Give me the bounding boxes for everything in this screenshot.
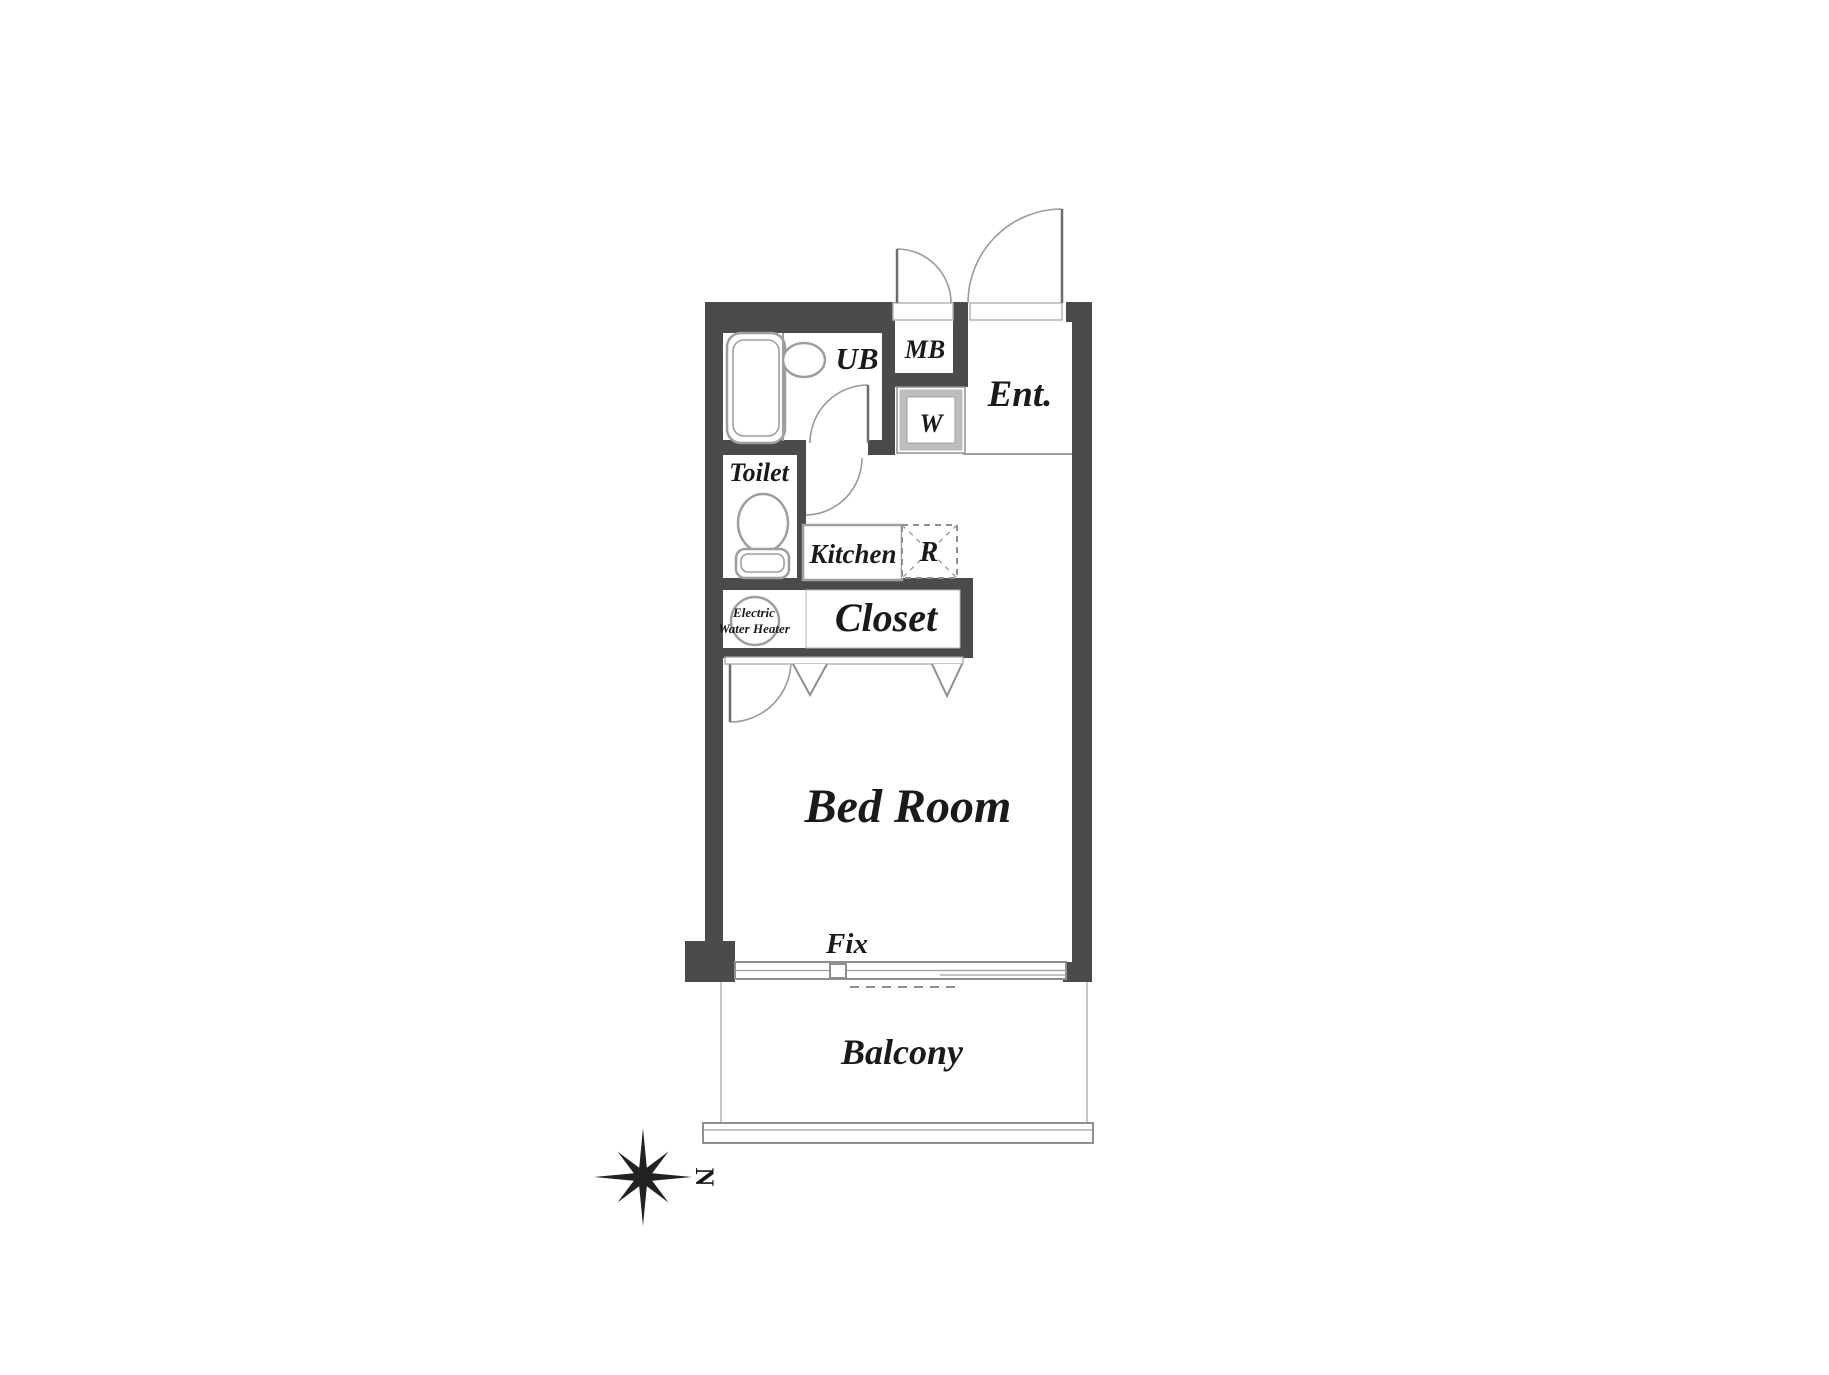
closet-door-mark-left [793, 664, 827, 695]
room-label-bedroom: Bed Room [804, 780, 1012, 833]
bedroom-door-swing [730, 661, 791, 722]
washbasin-icon [783, 343, 825, 377]
closet-door-mark-right [932, 664, 962, 696]
water-heater-label-line2: Water Heater [718, 621, 791, 636]
room-label-mb: MB [904, 335, 945, 364]
door-openings [893, 303, 1062, 320]
room-label-closet: Closet [835, 595, 939, 640]
wall-ub-bottom-stub [868, 440, 895, 455]
room-label-balcony: Balcony [840, 1032, 964, 1072]
wall-top-left [705, 302, 891, 333]
ub-door-swing [810, 385, 868, 443]
mb-door-swing [897, 249, 951, 303]
fix-window [735, 962, 1066, 987]
wall-right [1072, 318, 1092, 982]
bathtub-icon [727, 333, 785, 443]
wall-pillar-bottom-left [685, 941, 735, 982]
closet-track-line [725, 657, 963, 664]
fix-window-label: Fix [825, 928, 868, 960]
balcony-rail [703, 1123, 1093, 1143]
water-heater-label-line1: Electric [732, 605, 775, 620]
wall-ub-mb-divider [882, 302, 895, 453]
mb-door-opening [893, 303, 953, 320]
compass-rose-icon: N [594, 1128, 719, 1226]
entrance-door-swing [968, 209, 1062, 303]
floor-plan-page: N UB MB Ent. W Toilet Kitchen R Electric… [0, 0, 1829, 1375]
room-label-ub: UB [835, 341, 878, 376]
wall-below-mb [895, 373, 968, 387]
room-label-toilet: Toilet [729, 458, 789, 487]
room-label-washer: W [919, 409, 944, 438]
floor-plan-drawing: N UB MB Ent. W Toilet Kitchen R Electric… [0, 0, 1829, 1375]
toilet-door-swing [806, 458, 862, 515]
compass-north-label: N [690, 1168, 719, 1187]
room-label-refrigerator: R [919, 537, 939, 568]
wall-closet-right [960, 578, 973, 658]
room-label-kitchen: Kitchen [808, 539, 896, 569]
toilet-icon [736, 494, 789, 578]
entrance-door-opening [970, 303, 1062, 320]
window-center-marker [830, 964, 846, 978]
room-label-entrance: Ent. [987, 374, 1053, 415]
